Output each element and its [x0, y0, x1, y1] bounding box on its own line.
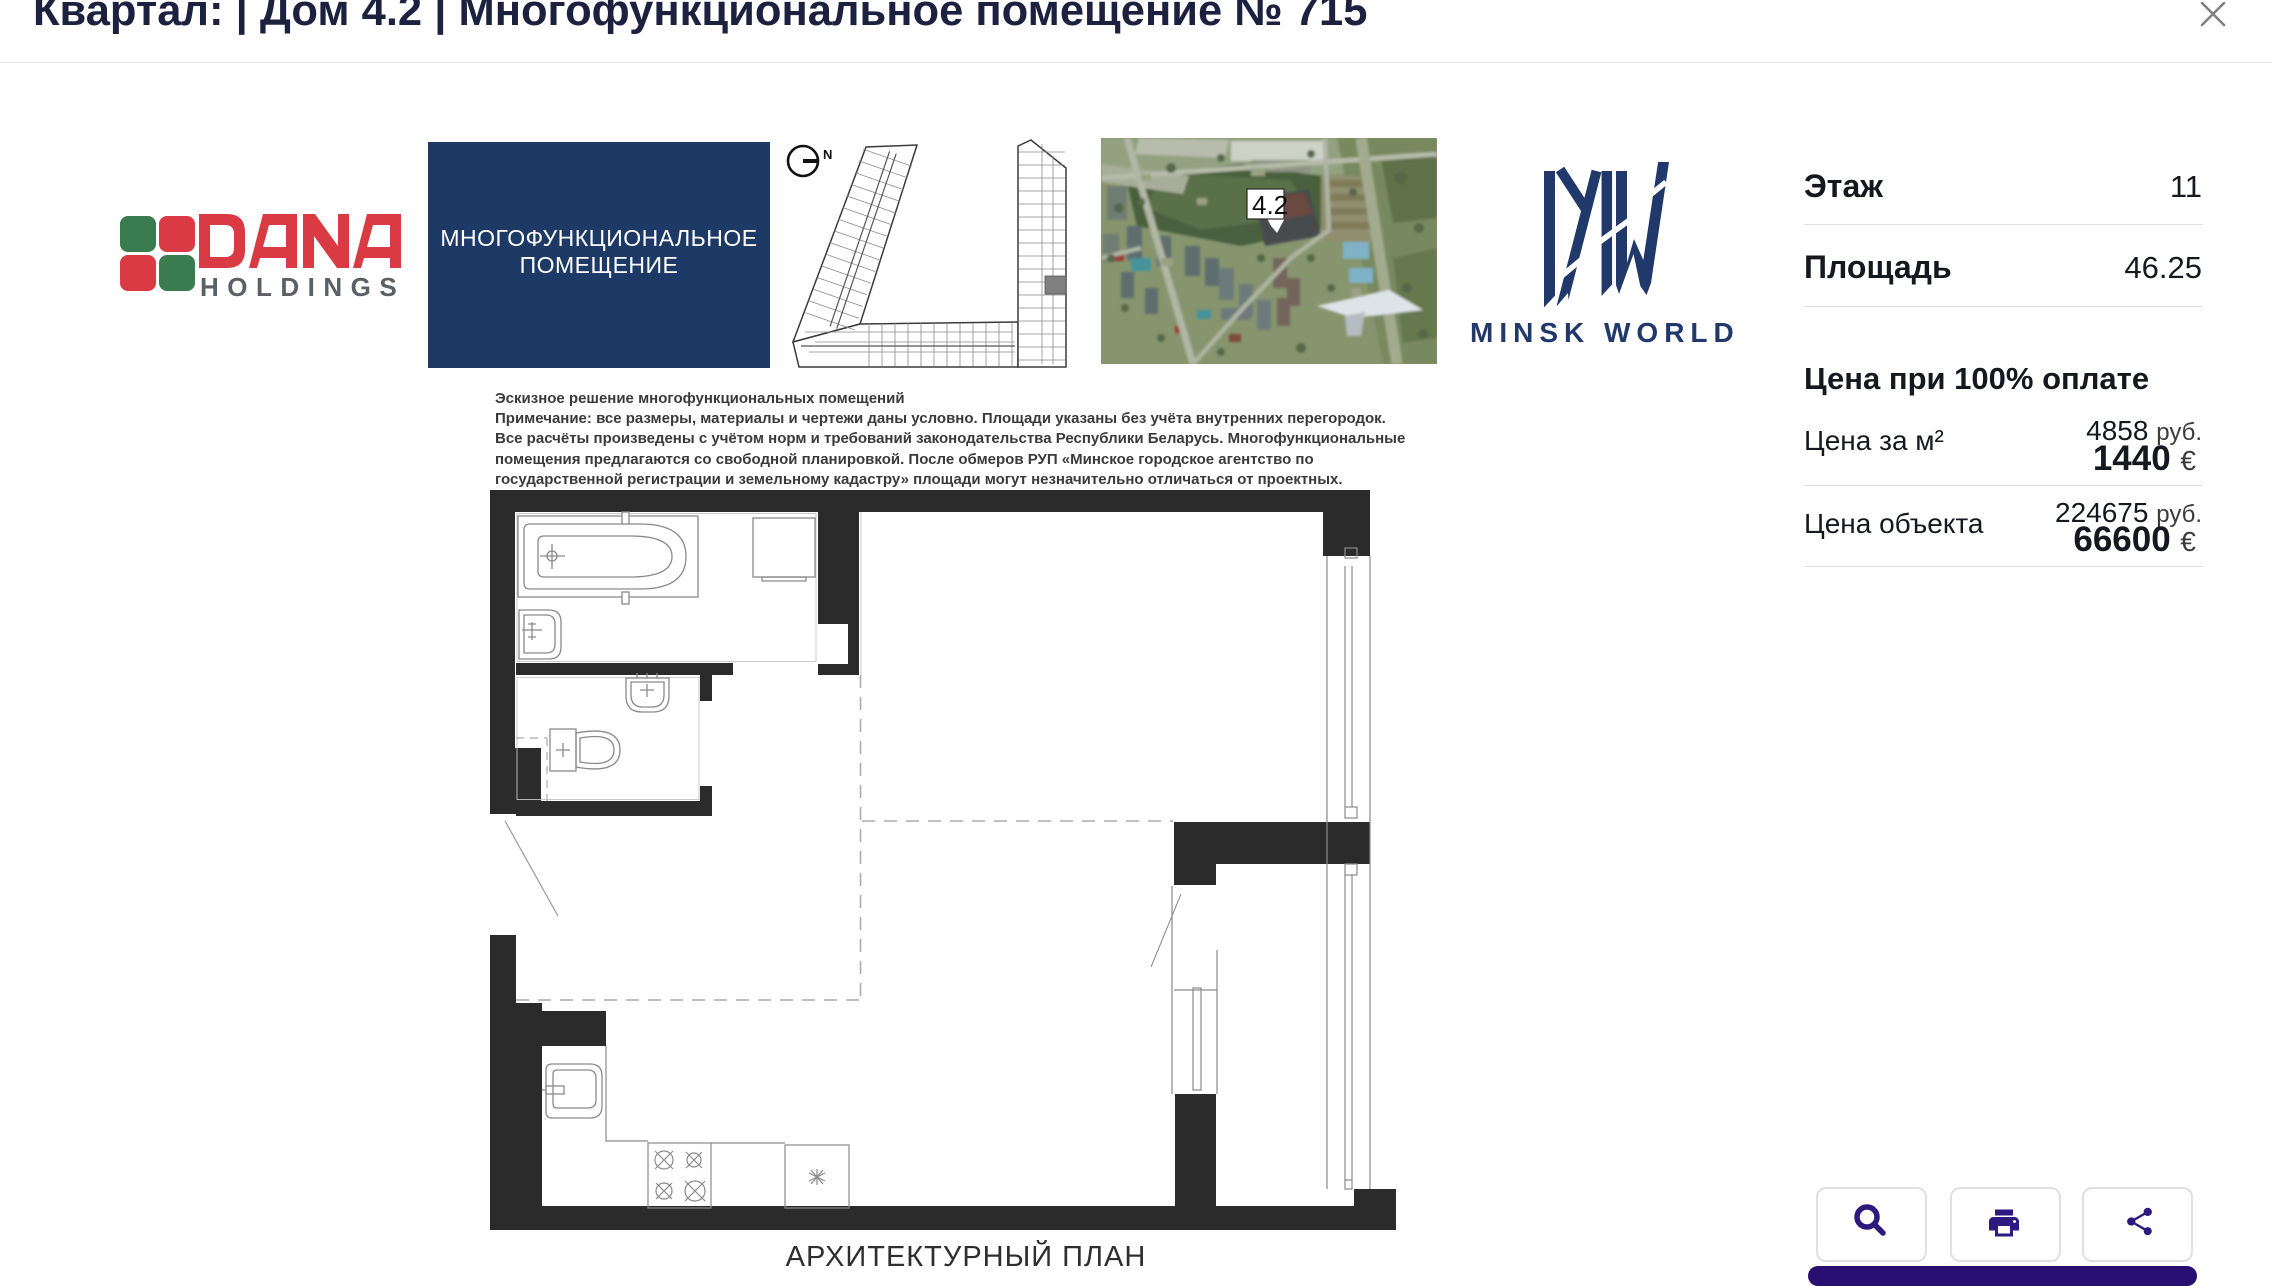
svg-text:4.2: 4.2 — [1252, 190, 1288, 220]
svg-text:MINSK WORLD: MINSK WORLD — [1470, 317, 1740, 348]
